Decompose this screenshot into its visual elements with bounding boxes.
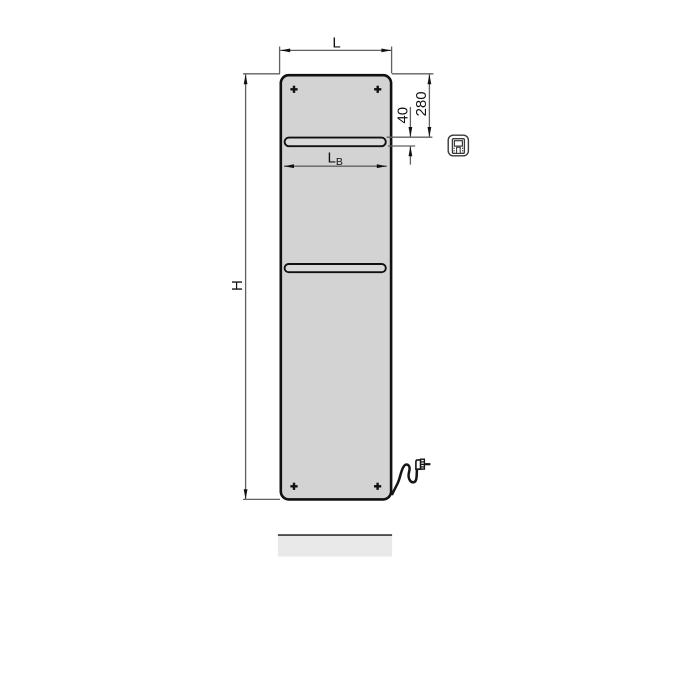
svg-text:H: H [229,280,246,291]
svg-text:L: L [332,34,340,51]
svg-text:40: 40 [394,107,411,124]
svg-text:280: 280 [413,91,430,116]
